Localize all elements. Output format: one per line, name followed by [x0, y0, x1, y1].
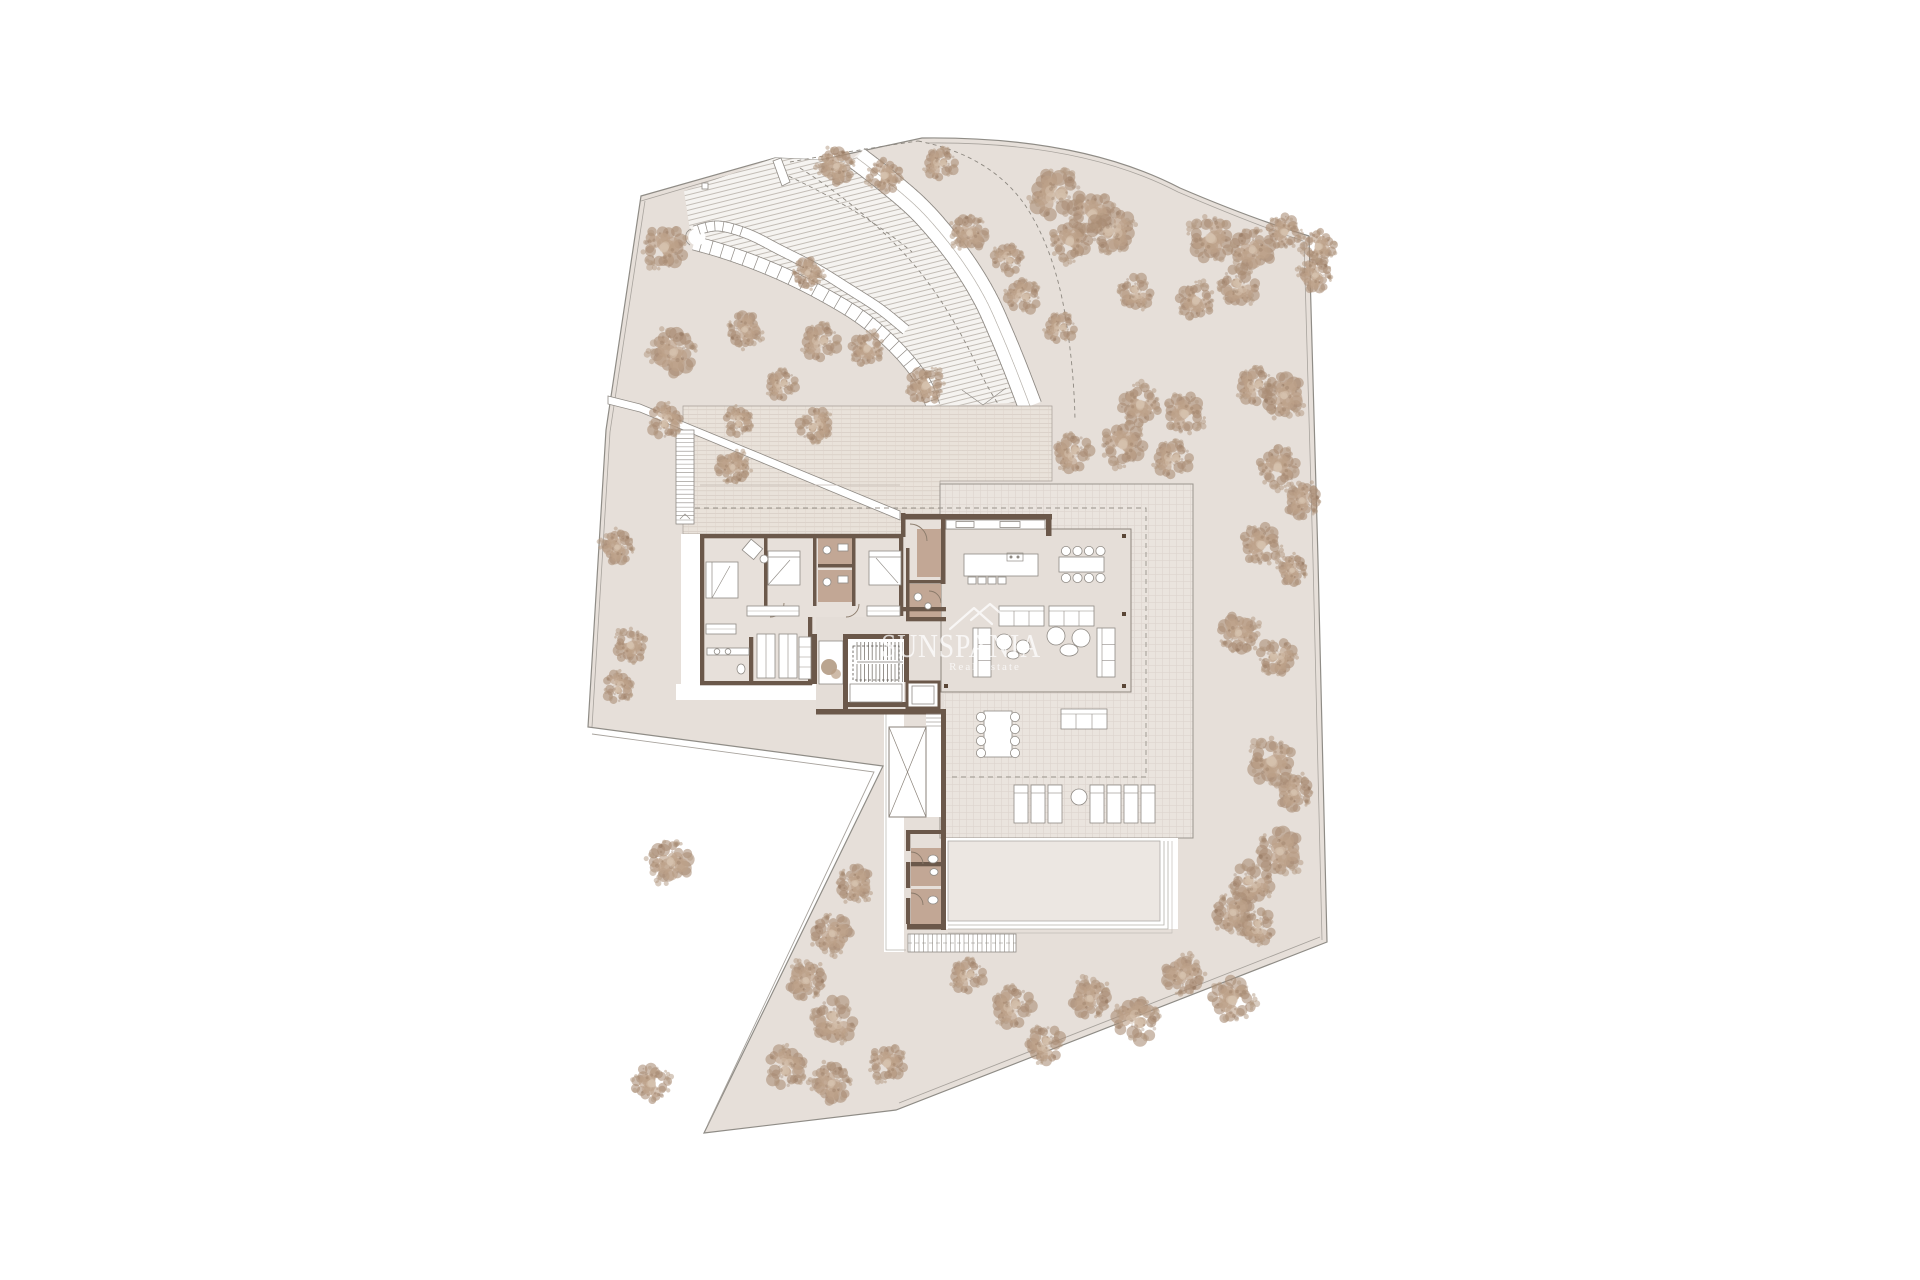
svg-text:Real Estate: Real Estate	[949, 661, 1021, 673]
svg-text:SUNSPANIA: SUNSPANIA	[881, 628, 1041, 665]
